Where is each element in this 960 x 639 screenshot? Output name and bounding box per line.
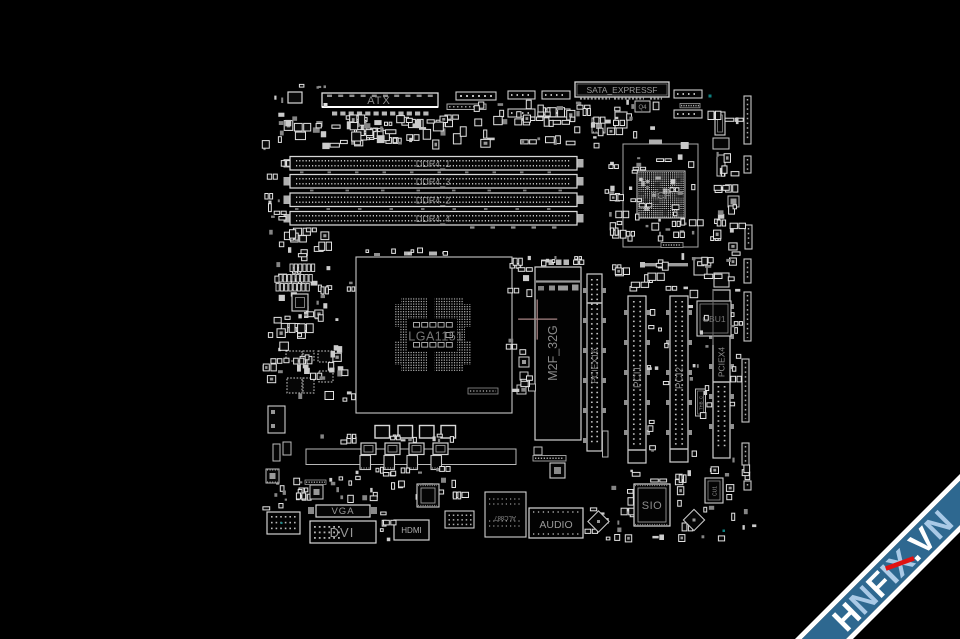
svg-text:SIO: SIO	[642, 500, 662, 512]
svg-text:M2F_32G: M2F_32G	[546, 325, 560, 381]
svg-text:DDR4_3: DDR4_3	[416, 177, 451, 187]
svg-text:AUDIO: AUDIO	[539, 519, 572, 531]
svg-text:HDMI: HDMI	[401, 526, 421, 535]
svg-text:THB_C: THB_C	[699, 396, 704, 410]
svg-text:PCI2: PCI2	[675, 366, 686, 389]
svg-text:Q4: Q4	[638, 105, 647, 111]
svg-text:DDR4_4: DDR4_4	[416, 214, 451, 224]
svg-text:CU1: CU1	[713, 486, 719, 496]
svg-text:PCIEX4: PCIEX4	[717, 347, 727, 378]
svg-text:DDR4_2: DDR4_2	[416, 195, 451, 205]
svg-text:ALC887: ALC887	[493, 514, 515, 520]
svg-text:VGA: VGA	[331, 506, 354, 517]
svg-text:PCIEX16: PCIEX16	[590, 348, 600, 383]
svg-text:SATA_EXPRESSF: SATA_EXPRESSF	[586, 85, 657, 95]
svg-text:PCI1: PCI1	[633, 365, 644, 388]
svg-text:LGA1151: LGA1151	[408, 330, 463, 344]
svg-text:ATX: ATX	[367, 95, 391, 107]
svg-text:DDR4_1: DDR4_1	[416, 159, 451, 169]
